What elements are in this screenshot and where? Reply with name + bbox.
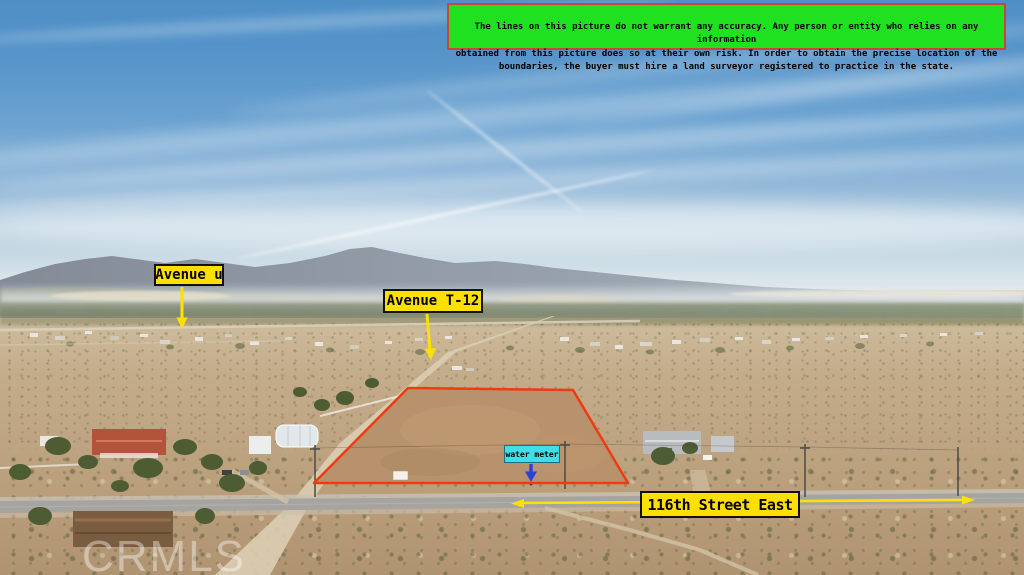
avenue-t12-label-text: Avenue T-12 bbox=[387, 293, 480, 309]
greenhouse bbox=[276, 425, 318, 447]
avenue-u-label-text: Avenue u bbox=[155, 267, 222, 283]
terrain-overlay bbox=[0, 0, 1024, 575]
water-meter-label: water meter bbox=[504, 445, 560, 463]
distant-trees bbox=[66, 342, 934, 356]
crmls-watermark: CRMLS bbox=[82, 532, 246, 575]
street-116-label: 116th Street East bbox=[640, 491, 800, 518]
disclaimer-box: The lines on this picture do not warrant… bbox=[447, 3, 1006, 50]
vehicle bbox=[240, 470, 249, 475]
vehicle bbox=[703, 455, 712, 460]
for-sale-sign bbox=[393, 471, 408, 480]
water-meter-label-text: water meter bbox=[506, 450, 559, 459]
disclaimer-text: The lines on this picture do not warrant… bbox=[456, 22, 998, 73]
shed bbox=[711, 436, 734, 452]
street-116-label-text: 116th Street East bbox=[647, 496, 792, 514]
crmls-watermark-text: CRMLS bbox=[82, 532, 246, 575]
dirt-trail bbox=[545, 508, 758, 575]
white-barn bbox=[249, 436, 271, 454]
avenue-t12-label: Avenue T-12 bbox=[383, 289, 483, 313]
distant-buildings bbox=[30, 331, 983, 371]
aerial-listing-photo: The lines on this picture do not warrant… bbox=[0, 0, 1024, 575]
avenue-u-label: Avenue u bbox=[154, 264, 224, 286]
